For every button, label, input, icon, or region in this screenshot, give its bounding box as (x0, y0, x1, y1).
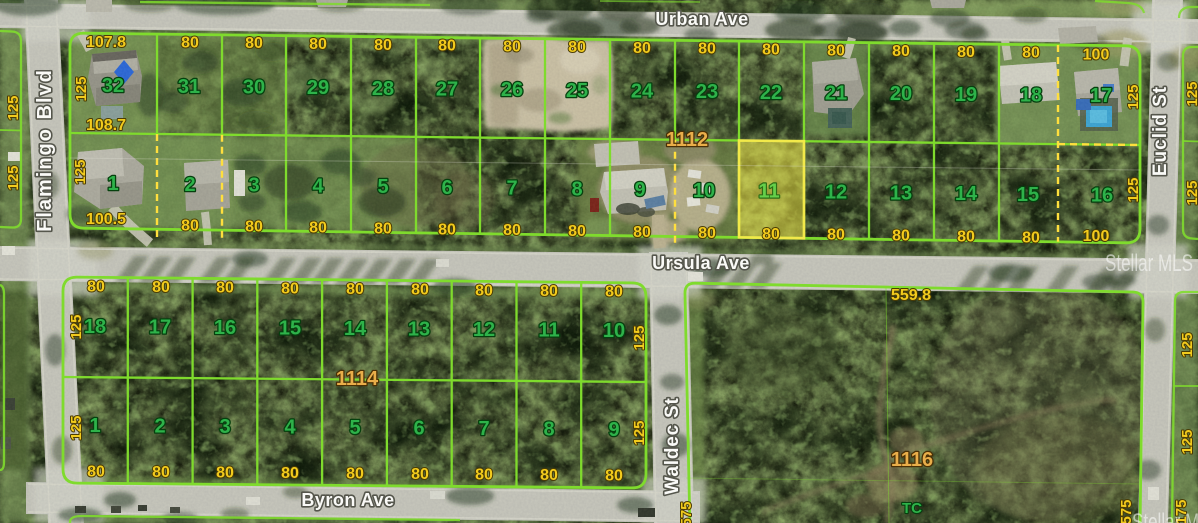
svg-text:2: 2 (184, 174, 195, 196)
svg-text:18: 18 (1020, 85, 1042, 107)
svg-text:19: 19 (955, 84, 977, 106)
svg-text:125: 125 (1184, 180, 1198, 205)
svg-text:125: 125 (5, 165, 22, 190)
svg-text:30: 30 (243, 77, 265, 99)
svg-text:125: 125 (1125, 177, 1142, 202)
svg-text:Stellar MLS: Stellar MLS (1132, 509, 1198, 523)
svg-text:23: 23 (696, 81, 718, 103)
svg-text:4: 4 (284, 417, 296, 439)
svg-text:80: 80 (438, 221, 456, 238)
svg-text:80: 80 (216, 280, 234, 297)
svg-text:8: 8 (543, 419, 554, 441)
svg-text:18: 18 (84, 316, 106, 338)
svg-text:21: 21 (825, 82, 847, 104)
svg-text:TC: TC (902, 500, 922, 517)
svg-text:32: 32 (102, 75, 124, 97)
svg-text:80: 80 (374, 220, 392, 237)
svg-text:125: 125 (68, 415, 85, 440)
svg-text:22: 22 (760, 82, 782, 104)
svg-text:12: 12 (825, 182, 847, 204)
svg-text:29: 29 (307, 77, 329, 99)
svg-text:80: 80 (827, 227, 845, 244)
svg-text:80: 80 (892, 228, 910, 245)
svg-text:80: 80 (281, 465, 299, 482)
svg-text:20: 20 (890, 83, 912, 105)
svg-text:80: 80 (181, 35, 199, 52)
svg-text:27: 27 (436, 78, 458, 100)
svg-text:125: 125 (1184, 81, 1198, 106)
svg-text:31: 31 (178, 76, 200, 98)
svg-text:24: 24 (631, 80, 654, 102)
svg-text:80: 80 (633, 40, 651, 57)
svg-text:80: 80 (87, 278, 105, 295)
svg-text:17: 17 (149, 317, 171, 339)
svg-text:80: 80 (346, 281, 364, 298)
svg-text:80: 80 (698, 225, 716, 242)
svg-text:80: 80 (152, 279, 170, 296)
svg-text:2: 2 (154, 416, 165, 438)
svg-text:80: 80 (475, 282, 493, 299)
svg-text:80: 80 (309, 36, 327, 53)
svg-text:80: 80 (892, 43, 910, 60)
svg-text:80: 80 (633, 224, 651, 241)
svg-text:Byron Ave: Byron Ave (301, 490, 394, 510)
svg-text:13: 13 (890, 182, 912, 204)
svg-text:80: 80 (152, 464, 170, 481)
svg-text:80: 80 (216, 464, 234, 481)
svg-text:8: 8 (571, 179, 582, 201)
svg-text:80: 80 (475, 467, 493, 484)
svg-text:Waldec St: Waldec St (662, 397, 683, 494)
svg-text:25: 25 (566, 80, 588, 102)
svg-text:4: 4 (312, 175, 324, 197)
svg-text:16: 16 (214, 317, 236, 339)
svg-text:5: 5 (377, 176, 388, 198)
svg-text:80: 80 (245, 35, 263, 52)
svg-text:Ursula Ave: Ursula Ave (652, 253, 750, 273)
svg-text:80: 80 (411, 466, 429, 483)
svg-text:575: 575 (678, 501, 695, 523)
svg-text:80: 80 (762, 226, 780, 243)
svg-text:11: 11 (758, 181, 779, 203)
svg-text:6: 6 (413, 418, 424, 440)
svg-text:125: 125 (72, 159, 89, 184)
svg-text:80: 80 (605, 468, 623, 485)
svg-text:15: 15 (279, 318, 301, 340)
svg-text:80: 80 (762, 42, 780, 59)
svg-text:Stellar MLS: Stellar MLS (1105, 250, 1193, 277)
svg-text:11: 11 (538, 320, 559, 342)
svg-text:125: 125 (631, 325, 648, 350)
svg-text:107.8: 107.8 (86, 34, 126, 51)
svg-text:1116: 1116 (891, 449, 933, 471)
svg-text:80: 80 (568, 223, 586, 240)
svg-text:80: 80 (540, 283, 558, 300)
svg-text:80: 80 (346, 466, 364, 483)
svg-text:28: 28 (372, 78, 394, 100)
svg-text:125: 125 (1179, 429, 1196, 454)
svg-text:1: 1 (107, 173, 118, 195)
svg-text:7: 7 (506, 178, 517, 200)
svg-text:125: 125 (1125, 84, 1142, 109)
svg-text:14: 14 (955, 183, 978, 205)
svg-text:80: 80 (568, 39, 586, 56)
svg-text:Euclid St: Euclid St (1150, 86, 1171, 176)
svg-text:80: 80 (87, 463, 105, 480)
svg-text:125: 125 (68, 314, 85, 339)
svg-text:80: 80 (374, 37, 392, 54)
svg-text:100.5: 100.5 (86, 211, 126, 228)
svg-text:3: 3 (219, 416, 230, 438)
svg-text:1112: 1112 (666, 129, 708, 151)
svg-text:3: 3 (248, 175, 259, 197)
svg-text:80: 80 (698, 41, 716, 58)
svg-text:14: 14 (344, 318, 367, 340)
svg-text:80: 80 (605, 284, 623, 301)
svg-text:Flamingo Blvd: Flamingo Blvd (34, 68, 56, 232)
svg-text:Urban Ave: Urban Ave (655, 9, 748, 29)
svg-text:80: 80 (1022, 45, 1040, 62)
svg-text:12: 12 (473, 319, 495, 341)
svg-text:80: 80 (540, 467, 558, 484)
svg-text:10: 10 (603, 320, 625, 342)
svg-text:80: 80 (503, 38, 521, 55)
svg-text:1114: 1114 (336, 368, 379, 390)
svg-text:125: 125 (73, 76, 90, 101)
svg-text:80: 80 (309, 220, 327, 237)
svg-text:7: 7 (478, 418, 489, 440)
svg-text:80: 80 (827, 42, 845, 59)
svg-text:10: 10 (693, 180, 715, 202)
svg-text:125: 125 (631, 420, 648, 445)
svg-text:80: 80 (245, 219, 263, 236)
svg-text:80: 80 (181, 218, 199, 235)
svg-text:17: 17 (1090, 85, 1112, 107)
svg-text:26: 26 (501, 79, 523, 101)
svg-text:1: 1 (89, 415, 100, 437)
svg-text:13: 13 (408, 319, 430, 341)
svg-text:100: 100 (1083, 228, 1110, 245)
svg-text:6: 6 (441, 177, 452, 199)
svg-text:125: 125 (5, 95, 22, 120)
svg-text:80: 80 (957, 229, 975, 246)
svg-text:80: 80 (411, 282, 429, 299)
svg-text:100: 100 (1083, 47, 1110, 64)
svg-text:559.8: 559.8 (891, 287, 931, 304)
svg-text:80: 80 (957, 44, 975, 61)
svg-text:80: 80 (1022, 230, 1040, 247)
svg-text:80: 80 (438, 38, 456, 55)
svg-text:80: 80 (503, 222, 521, 239)
svg-text:5: 5 (349, 417, 360, 439)
svg-text:125: 125 (1179, 332, 1196, 357)
svg-text:80: 80 (281, 280, 299, 297)
svg-text:9: 9 (634, 179, 645, 201)
svg-text:9: 9 (608, 419, 619, 441)
svg-text:16: 16 (1091, 185, 1113, 207)
svg-text:15: 15 (1017, 184, 1039, 206)
svg-text:108.7: 108.7 (86, 117, 126, 134)
